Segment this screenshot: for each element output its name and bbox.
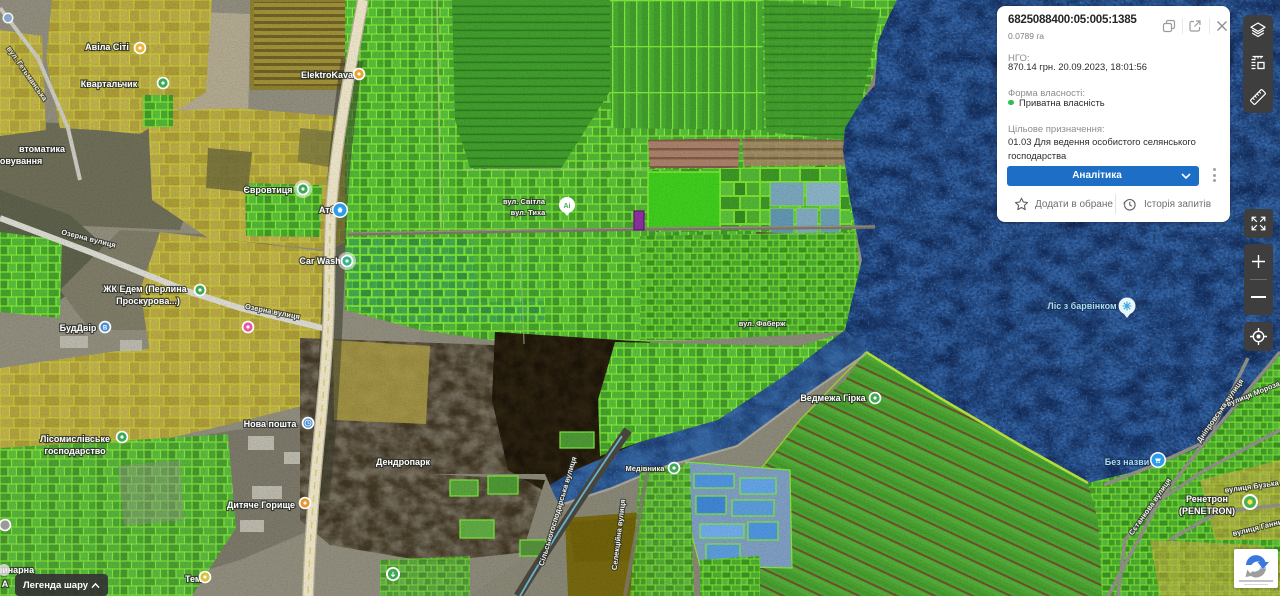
svg-text:Ренетрон: Ренетрон bbox=[1186, 494, 1228, 504]
svg-text:мообслуговування: мообслуговування bbox=[0, 156, 42, 166]
svg-text:Аі: Аі bbox=[564, 202, 571, 210]
svg-text:Ведмежа Гірка: Ведмежа Гірка bbox=[800, 393, 866, 403]
svg-text:Нова пошта: Нова пошта bbox=[244, 419, 298, 429]
svg-text:Дендропарк: Дендропарк bbox=[376, 457, 431, 467]
svg-text:вул. Тиха: вул. Тиха bbox=[511, 208, 547, 217]
svg-text:Без назви: Без назви bbox=[1105, 457, 1150, 467]
svg-text:БудДвір: БудДвір bbox=[60, 323, 97, 333]
svg-text:Дитяче Горище: Дитяче Горище bbox=[227, 500, 295, 510]
svg-text:Лісомислівське: Лісомислівське bbox=[40, 434, 110, 444]
svg-text:вул. Світла: вул. Світла bbox=[503, 197, 546, 206]
svg-text:Євровтиця: Євровтиця bbox=[243, 185, 292, 195]
svg-text:ElektroKava: ElektroKava bbox=[301, 70, 354, 80]
svg-text:ЖК Едем (Перлина: ЖК Едем (Перлина bbox=[102, 284, 187, 294]
svg-text:(PENETRON): (PENETRON) bbox=[1179, 506, 1235, 516]
svg-text:А: А bbox=[2, 579, 9, 589]
svg-text:Проскурова...): Проскурова...) bbox=[116, 296, 180, 306]
svg-text:Медівника: Медівника bbox=[626, 464, 666, 473]
svg-text:Car Wash: Car Wash bbox=[299, 256, 340, 266]
svg-text:Авіла Сіті: Авіла Сіті bbox=[85, 42, 129, 52]
svg-text:Ліс з барвінком: Ліс з барвінком bbox=[1047, 301, 1117, 311]
svg-text:Квартальчик: Квартальчик bbox=[81, 79, 138, 89]
svg-text:B: B bbox=[103, 326, 108, 332]
svg-text:втоматика: втоматика bbox=[19, 144, 66, 154]
svg-text:господарство: господарство bbox=[44, 446, 106, 456]
svg-text:вул. Фаберж: вул. Фаберж bbox=[739, 319, 786, 328]
